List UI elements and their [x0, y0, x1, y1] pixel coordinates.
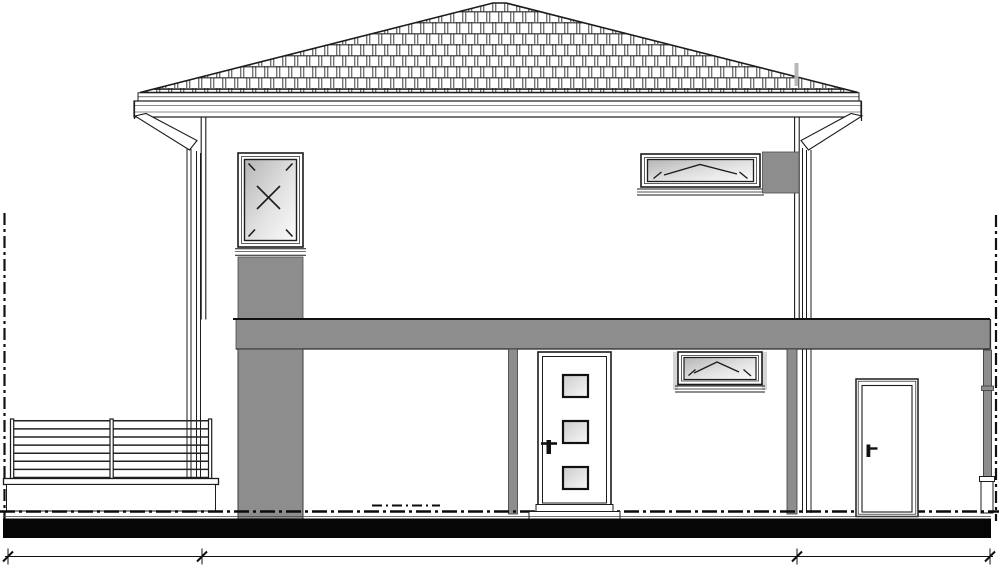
pedestal-cap [980, 477, 995, 482]
wall-post-left [509, 349, 518, 514]
elevation-drawing-canvas [0, 0, 1000, 570]
door-handle-plate [547, 440, 552, 454]
window-glass [684, 358, 756, 380]
door-glass-pane [563, 467, 588, 489]
door-glass-pane [563, 375, 588, 397]
door-threshold-top [536, 505, 613, 512]
terrace-railing [4, 419, 219, 511]
porch-column [238, 349, 303, 519]
corner-post [980, 350, 995, 513]
upper-left-window [235, 153, 306, 255]
entry-door [529, 352, 620, 521]
window-glass [648, 160, 754, 182]
eave-gutter [134, 93, 862, 121]
facade-panel-right [763, 152, 800, 193]
elevation-drawing [0, 0, 1000, 570]
dimension-line [3, 549, 995, 565]
vent-pipe-mark [795, 63, 799, 86]
upper-right-window [637, 154, 764, 195]
railing-post [209, 419, 212, 479]
window-sill [235, 249, 306, 256]
door-glass-pane [563, 421, 588, 443]
window-sill [675, 386, 765, 392]
corner-post-collar [982, 386, 994, 391]
railing-post [110, 419, 113, 479]
secondary-door [856, 379, 918, 517]
pedestal [981, 482, 993, 514]
wall-post-right [787, 349, 797, 514]
door-handle-plate [867, 445, 871, 458]
railing-base-wall [7, 485, 216, 512]
window-sill [637, 189, 764, 195]
ground-floor-window [673, 352, 767, 392]
slab-band [233, 319, 991, 349]
downspout-elbow-left [135, 114, 197, 151]
spandrel-panel-left [238, 257, 303, 320]
downspout-elbow-right [801, 114, 862, 151]
roof-tile-surface [140, 3, 858, 93]
railing-base-cap [4, 479, 219, 485]
ground-slab-strip [3, 519, 991, 539]
hipped-roof [140, 3, 858, 93]
railing-post [11, 419, 14, 479]
